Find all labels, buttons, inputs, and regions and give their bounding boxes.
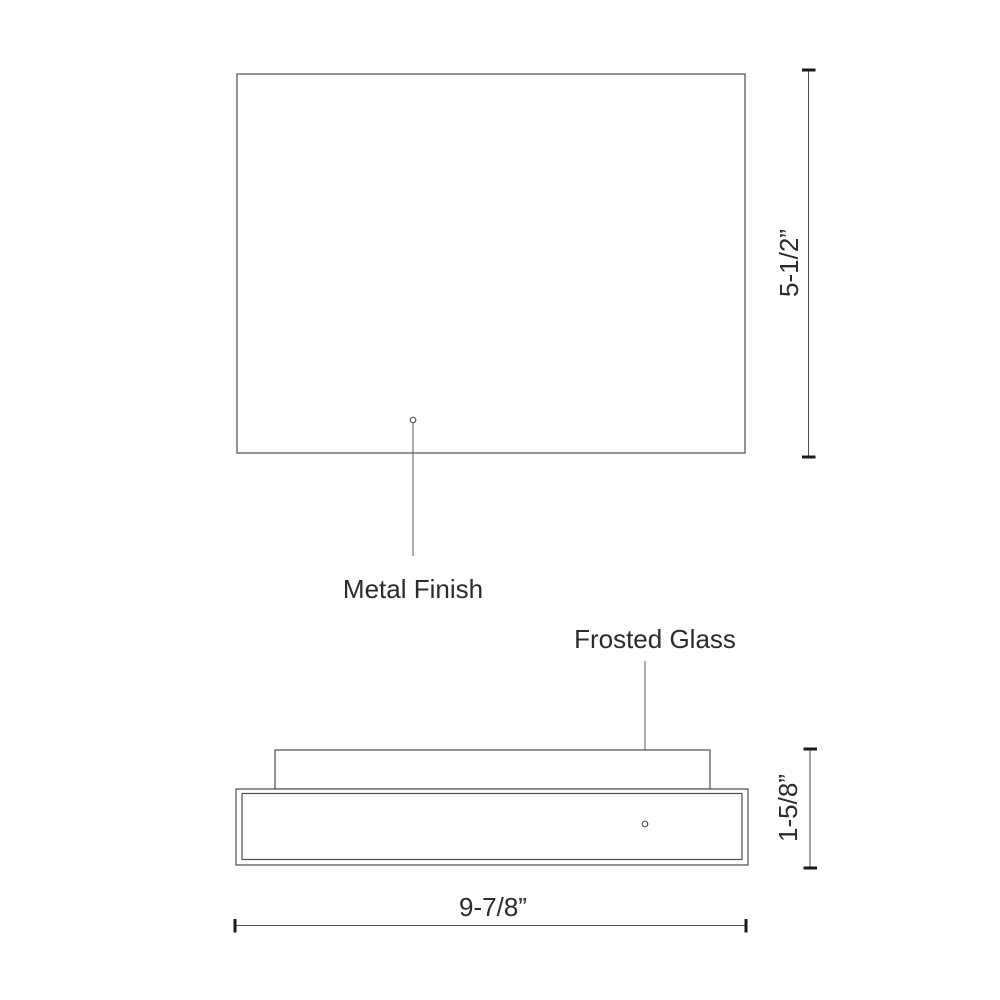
top-view-height-value: 5-1/2” xyxy=(774,229,804,297)
mounting-plate-outline xyxy=(275,750,710,789)
frosted-glass-dot-icon xyxy=(642,821,648,827)
technical-drawing: Metal Finish 5-1/2” Frosted Glass xyxy=(0,0,1000,1000)
metal-finish-label: Metal Finish xyxy=(343,574,483,604)
frosted-glass-label: Frosted Glass xyxy=(574,624,736,654)
metal-finish-dot-icon xyxy=(410,417,416,423)
side-view-width-value: 9-7/8” xyxy=(459,892,527,922)
drawing-canvas: Metal Finish 5-1/2” Frosted Glass xyxy=(0,0,1000,1000)
side-view-height-value: 1-5/8” xyxy=(773,774,803,842)
top-view: Metal Finish 5-1/2” xyxy=(237,70,816,604)
top-view-height-dimension: 5-1/2” xyxy=(774,70,815,457)
side-view-width-dimension: 9-7/8” xyxy=(235,892,746,933)
side-view: Frosted Glass 1-5/8” 9-7/8” xyxy=(235,624,817,933)
top-view-outline xyxy=(237,74,745,453)
side-view-height-dimension: 1-5/8” xyxy=(773,749,817,868)
glass-panel-outline xyxy=(242,794,742,860)
